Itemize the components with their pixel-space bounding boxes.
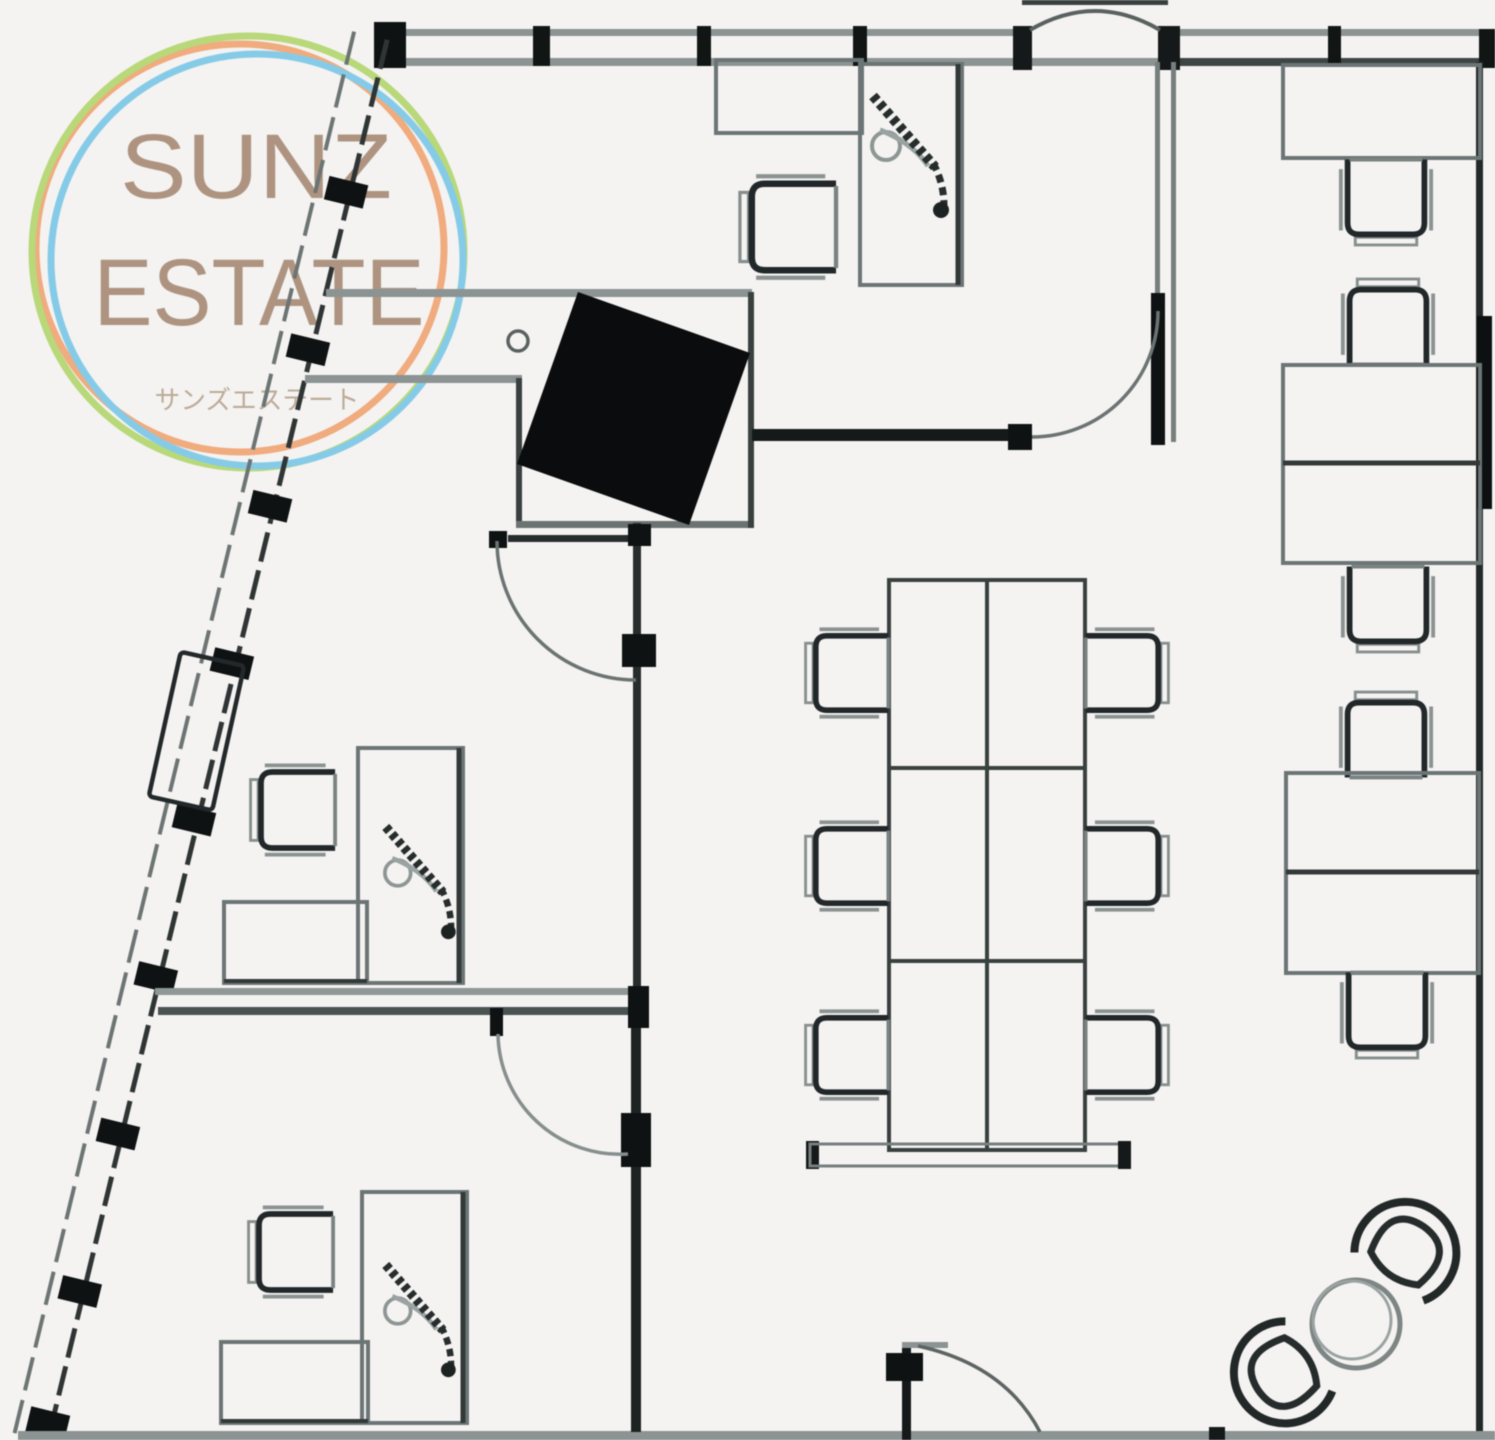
svg-text:サンズエステート: サンズエステート [155,385,360,415]
